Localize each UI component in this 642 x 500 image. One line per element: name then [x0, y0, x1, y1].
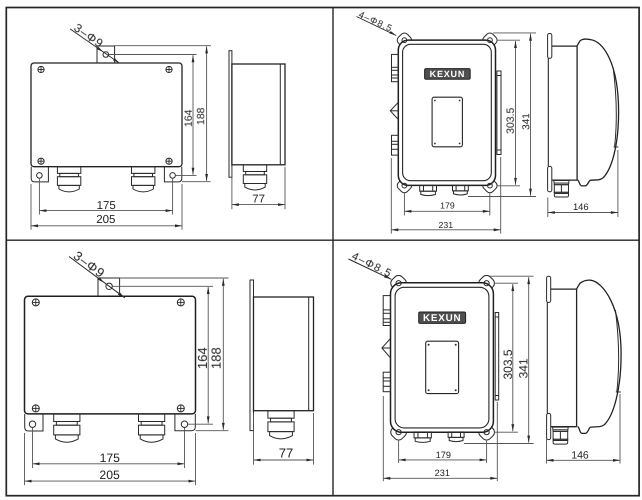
svg-text:175: 175: [97, 200, 116, 212]
svg-text:303.5: 303.5: [505, 108, 517, 134]
svg-text:303.5: 303.5: [501, 349, 515, 379]
svg-text:231: 231: [439, 220, 454, 230]
svg-text:77: 77: [252, 194, 265, 206]
svg-text:146: 146: [571, 449, 589, 461]
svg-text:77: 77: [279, 445, 293, 460]
svg-text:205: 205: [99, 468, 120, 482]
svg-text:231: 231: [435, 468, 450, 478]
svg-text:179: 179: [436, 450, 451, 460]
svg-text:KEXUN: KEXUN: [430, 69, 466, 79]
svg-text:341: 341: [521, 113, 532, 130]
svg-text:188: 188: [209, 347, 224, 369]
svg-text:146: 146: [573, 201, 589, 212]
svg-text:164: 164: [183, 109, 195, 127]
svg-text:179: 179: [440, 200, 455, 210]
svg-text:KEXUN: KEXUN: [423, 313, 461, 324]
svg-text:188: 188: [195, 107, 207, 125]
svg-text:175: 175: [100, 451, 121, 465]
svg-text:205: 205: [96, 214, 115, 226]
svg-text:341: 341: [516, 358, 530, 378]
